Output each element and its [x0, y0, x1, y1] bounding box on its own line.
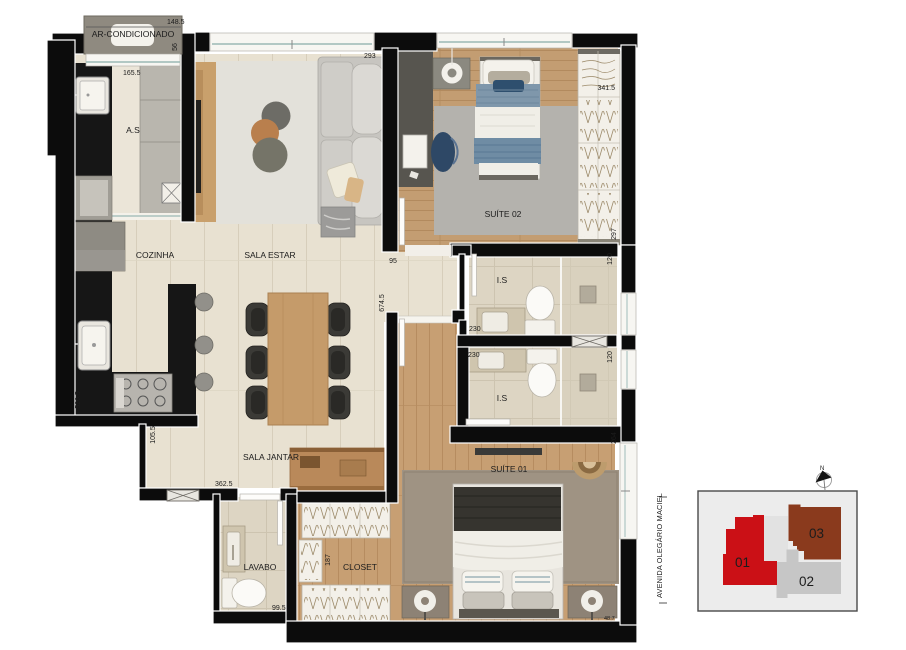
svg-text:230: 230 [468, 352, 480, 359]
svg-text:293: 293 [364, 53, 376, 60]
svg-text:AR-CONDICIONADO: AR-CONDICIONADO [92, 29, 175, 39]
svg-text:48.7: 48.7 [604, 616, 615, 622]
svg-text:187: 187 [325, 554, 332, 566]
svg-text:362.5: 362.5 [215, 481, 233, 488]
svg-text:120: 120 [607, 351, 614, 363]
svg-text:99.5: 99.5 [272, 605, 286, 612]
svg-text:148.5: 148.5 [167, 19, 185, 26]
svg-text:SUÍTE 01: SUÍTE 01 [491, 464, 528, 474]
svg-text:56: 56 [172, 43, 179, 51]
svg-text:120: 120 [607, 253, 614, 265]
svg-text:674.5: 674.5 [379, 294, 386, 312]
svg-text:SALA JANTAR: SALA JANTAR [243, 452, 299, 462]
svg-text:AVENIDA OLEGÁRIO MACIEL: AVENIDA OLEGÁRIO MACIEL [655, 493, 664, 598]
svg-text:264: 264 [611, 432, 618, 444]
svg-text:95: 95 [389, 258, 397, 265]
svg-text:105.5: 105.5 [150, 426, 157, 444]
svg-text:297: 297 [611, 228, 618, 240]
svg-text:SUÍTE 02: SUÍTE 02 [485, 209, 522, 219]
svg-text:165.5: 165.5 [123, 70, 141, 77]
svg-text:526.5: 526.5 [75, 391, 82, 409]
svg-text:LAVABO: LAVABO [244, 562, 277, 572]
svg-text:SALA ESTAR: SALA ESTAR [244, 250, 295, 260]
svg-text:I.S: I.S [497, 275, 508, 285]
svg-text:I.S: I.S [497, 393, 508, 403]
svg-text:02: 02 [799, 574, 814, 589]
svg-text:230: 230 [469, 326, 481, 333]
svg-text:A.S: A.S [126, 125, 140, 135]
svg-text:CLOSET: CLOSET [343, 562, 377, 572]
svg-text:COZINHA: COZINHA [136, 250, 175, 260]
svg-text:01: 01 [735, 555, 750, 570]
svg-text:03: 03 [809, 526, 824, 541]
svg-text:N: N [820, 466, 824, 472]
svg-text:341.5: 341.5 [597, 85, 615, 92]
